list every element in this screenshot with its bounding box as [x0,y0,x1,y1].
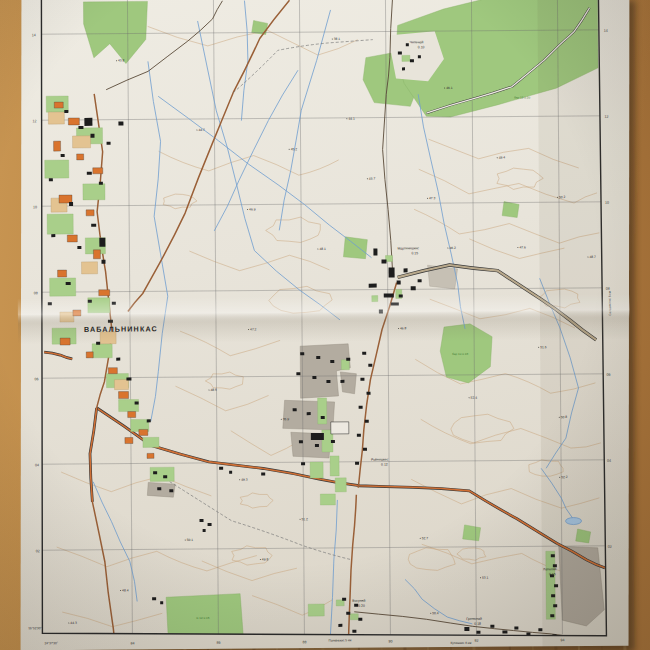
topographic-map-scene: ВАБАЛЬНИНКАСМартинишкис0.15Ровнишкес0.12… [0,0,650,650]
photo-vignette [0,0,650,650]
map-photo: ВАБАЛЬНИНКАС [0,0,650,650]
